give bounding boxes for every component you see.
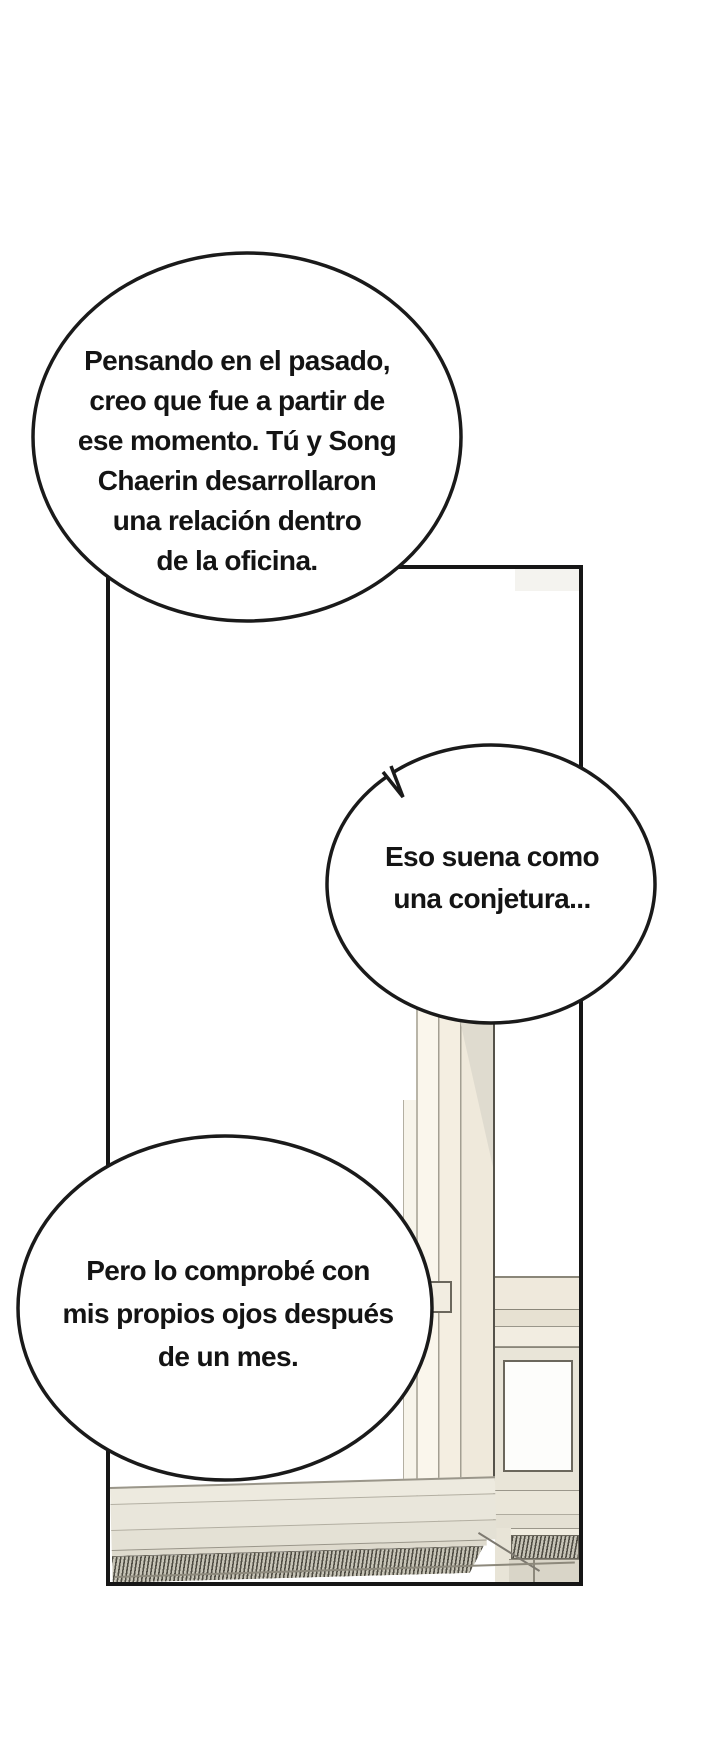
speech-bubble-1-text: Pensando en el pasado, creo que fue a pa… bbox=[37, 341, 437, 581]
dialogue-line: Eso suena como bbox=[320, 836, 664, 878]
dialogue-line: mis propios ojos después bbox=[28, 1292, 428, 1335]
right-window-pane bbox=[503, 1360, 573, 1472]
dialogue-line: Chaerin desarrollaron bbox=[37, 461, 437, 501]
dialogue-line: de un mes. bbox=[28, 1335, 428, 1378]
dialogue-line: Pero lo comprobé con bbox=[28, 1249, 428, 1292]
speech-bubble-3-text: Pero lo comprobé con mis propios ojos de… bbox=[28, 1249, 428, 1378]
dialogue-line: ese momento. Tú y Song bbox=[37, 421, 437, 461]
dialogue-line: creo que fue a partir de bbox=[37, 381, 437, 421]
dialogue-line: Pensando en el pasado, bbox=[37, 341, 437, 381]
dialogue-line: una conjetura... bbox=[320, 878, 664, 920]
right-window-rail-mid bbox=[495, 1310, 579, 1327]
wall-highlight bbox=[515, 569, 579, 591]
speech-bubble-2-text: Eso suena como una conjetura... bbox=[320, 836, 664, 920]
dialogue-line: una relación dentro bbox=[37, 501, 437, 541]
right-window-rail-lower bbox=[495, 1327, 579, 1347]
dialogue-line: de la oficina. bbox=[37, 541, 437, 581]
right-sill-band-lower bbox=[495, 1514, 579, 1528]
right-sill-band-upper bbox=[495, 1490, 579, 1514]
right-radiator-grille bbox=[511, 1535, 579, 1559]
right-window-rail-upper bbox=[495, 1276, 579, 1310]
comic-page: Pensando en el pasado, creo que fue a pa… bbox=[0, 0, 720, 1750]
